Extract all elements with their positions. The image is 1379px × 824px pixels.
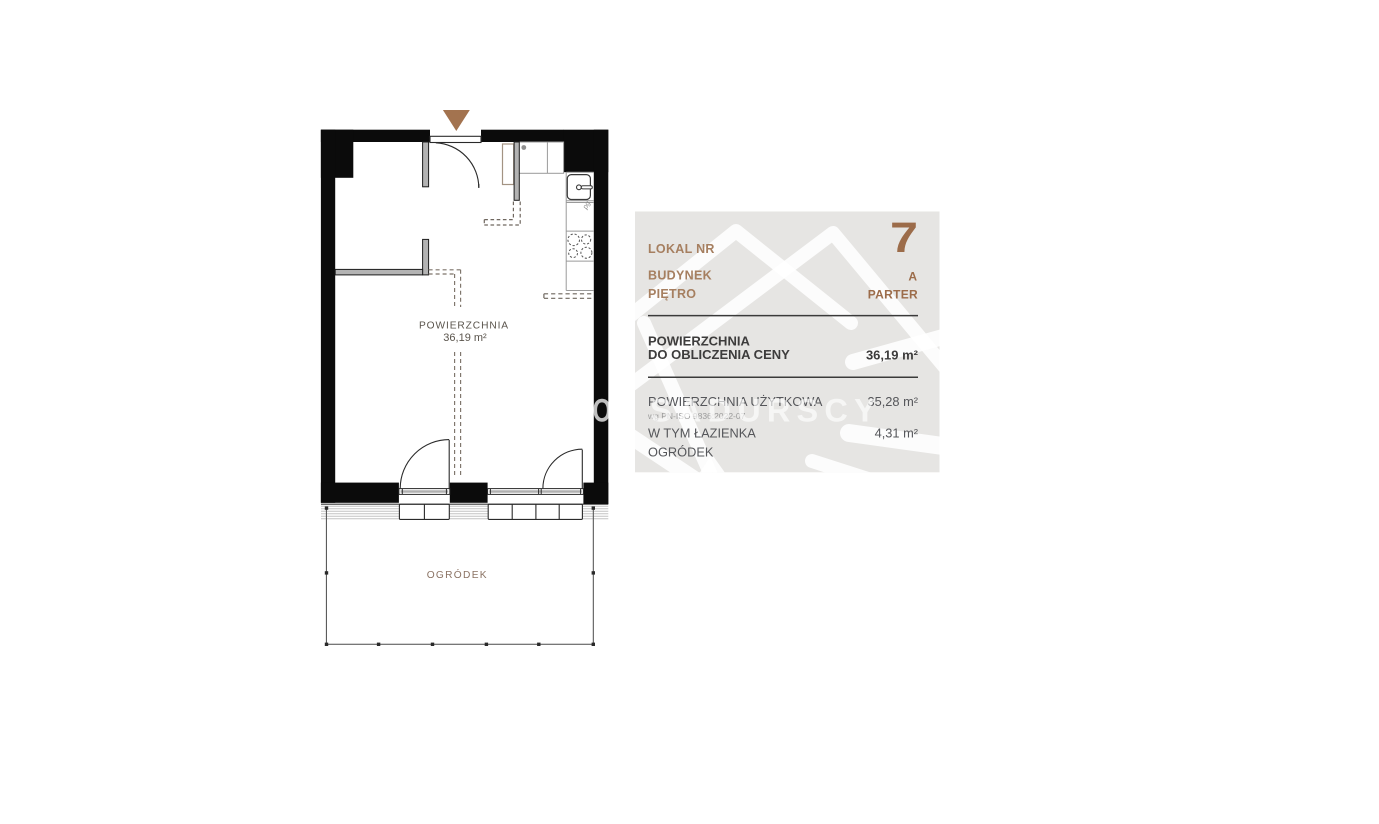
svg-text:SADURSCY: SADURSCY bbox=[650, 392, 882, 428]
svg-text:OGRÓDEK: OGRÓDEK bbox=[427, 568, 488, 581]
svg-text:A: A bbox=[908, 269, 917, 283]
svg-text:O: O bbox=[593, 392, 612, 428]
svg-text:pg: pg bbox=[582, 200, 592, 211]
svg-text:LOKAL NR: LOKAL NR bbox=[648, 242, 715, 256]
svg-text:36,19 m²: 36,19 m² bbox=[443, 332, 487, 344]
svg-text:OGRÓDEK: OGRÓDEK bbox=[648, 445, 714, 460]
svg-text:PARTER: PARTER bbox=[868, 287, 918, 301]
svg-text:PIĘTRO: PIĘTRO bbox=[648, 287, 696, 301]
svg-text:POWIERZCHNIA: POWIERZCHNIA bbox=[419, 320, 509, 331]
svg-text:36,19 m²: 36,19 m² bbox=[866, 347, 919, 362]
svg-text:BUDYNEK: BUDYNEK bbox=[648, 269, 712, 283]
svg-text:POWIERZCHNIA: POWIERZCHNIA bbox=[648, 333, 750, 348]
svg-text:DO OBLICZENIA CENY: DO OBLICZENIA CENY bbox=[648, 347, 790, 362]
svg-text:7: 7 bbox=[890, 215, 918, 262]
